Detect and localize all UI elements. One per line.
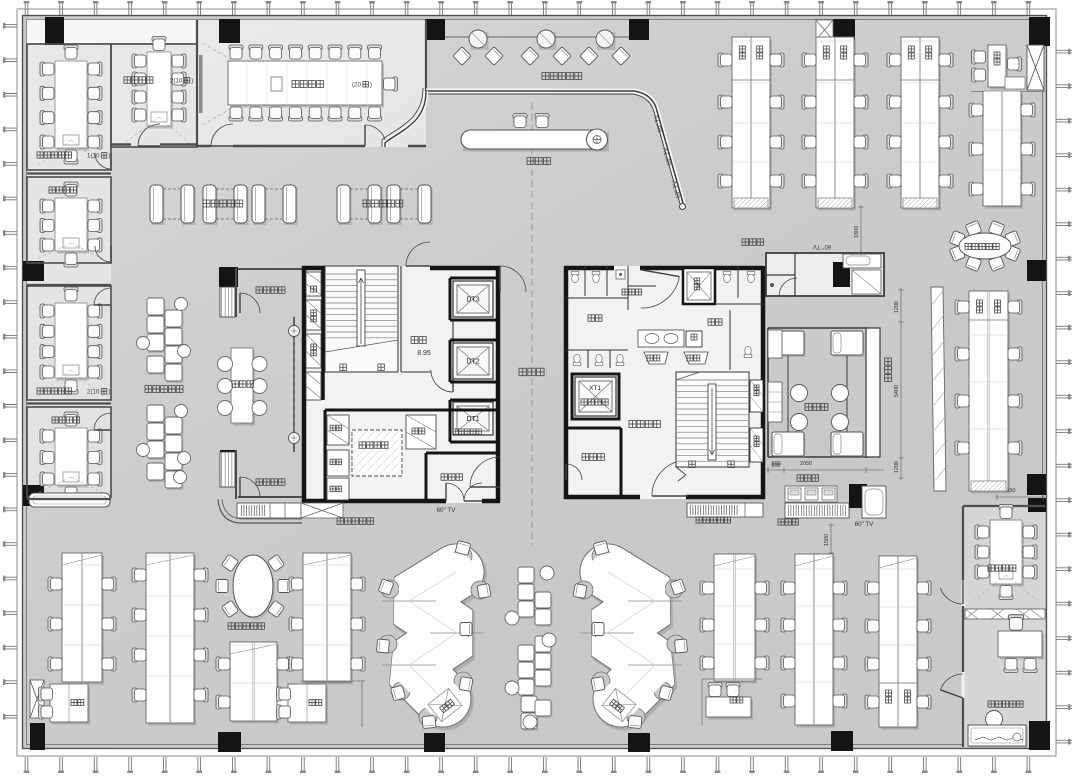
svg-text:600: 600 xyxy=(771,461,780,467)
svg-text:2(10: 2(10 xyxy=(87,389,100,396)
svg-text:): ) xyxy=(108,153,110,160)
svg-text:8.95: 8.95 xyxy=(417,350,431,357)
svg-text:5400: 5400 xyxy=(894,385,900,397)
svg-text:(20: (20 xyxy=(352,82,362,89)
svg-text:1(10: 1(10 xyxy=(87,153,100,160)
svg-text:1800: 1800 xyxy=(854,226,860,238)
svg-text:DT1: DT1 xyxy=(466,416,479,423)
svg-text:60" TV: 60" TV xyxy=(437,507,457,514)
svg-text:): ) xyxy=(108,389,110,396)
svg-text:1200: 1200 xyxy=(894,301,900,313)
svg-text:1500: 1500 xyxy=(824,534,830,546)
svg-text:): ) xyxy=(191,78,193,85)
svg-text:1200: 1200 xyxy=(894,461,900,473)
svg-text:60" TV: 60" TV xyxy=(855,521,874,528)
svg-text:): ) xyxy=(370,82,372,89)
svg-text:60" TV: 60" TV xyxy=(812,243,831,250)
svg-text:DT2: DT2 xyxy=(466,359,479,366)
svg-text:2050: 2050 xyxy=(800,461,812,467)
svg-text:2(10: 2(10 xyxy=(170,78,183,85)
svg-text:DT3: DT3 xyxy=(466,297,479,304)
svg-text:XT1: XT1 xyxy=(589,385,601,392)
